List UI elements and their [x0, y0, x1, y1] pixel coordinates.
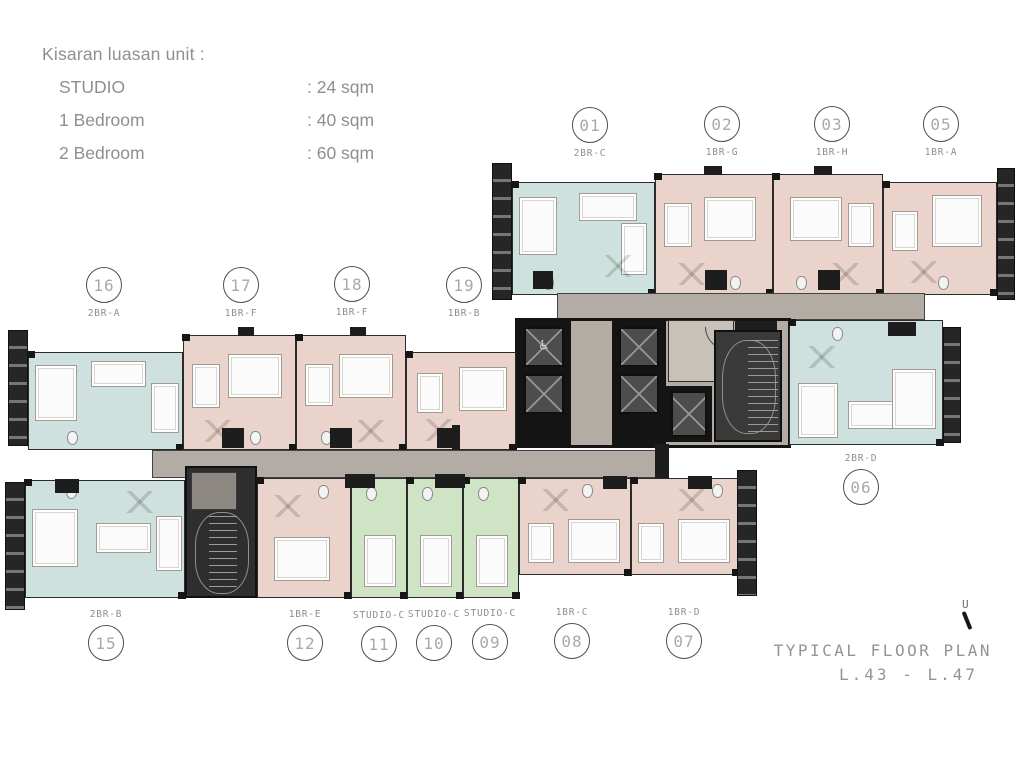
shaft-block: [705, 270, 727, 290]
shaft-block: [688, 476, 712, 489]
balcony-strip: [5, 482, 25, 610]
wall-stub: [888, 322, 916, 336]
wall-stub: [452, 425, 460, 453]
elevator-cab: [619, 374, 659, 414]
unit-type-label: STUDIO-C: [353, 610, 405, 621]
unit-marker-03: 03 1BR-H: [814, 106, 850, 142]
shaft-block: [222, 428, 244, 448]
unit-05-room: [883, 182, 997, 295]
elevator-cab: [619, 327, 659, 367]
shaft-block: [533, 271, 553, 289]
unit-type-label: 1BR-C: [556, 607, 589, 618]
north-arrow: U: [952, 598, 982, 638]
unit-number: 08: [554, 623, 590, 659]
wall-stub: [655, 444, 669, 478]
unit-number: 10: [416, 625, 452, 661]
unit-number: 03: [814, 106, 850, 142]
unit-type-label: 1BR-H: [816, 147, 849, 158]
shaft-block: [330, 428, 352, 448]
unit-09-room: [463, 478, 519, 598]
corridor-top: [557, 293, 925, 320]
unit-number: 09: [472, 624, 508, 660]
unit-number: 07: [666, 623, 702, 659]
unit-type-label: 2BR-D: [845, 453, 878, 464]
unit-type-label: 2BR-B: [90, 609, 123, 620]
unit-type-label: 2BR-A: [88, 308, 121, 319]
wall-stub: [350, 327, 366, 336]
unit-number: 12: [287, 625, 323, 661]
unit-08-room: [519, 478, 631, 575]
shaft-block: [435, 474, 465, 488]
elevator-cab: [671, 391, 707, 437]
unit-marker-11: 11 STUDIO-C: [361, 626, 397, 662]
unit-marker-17: 17 1BR-F: [223, 267, 259, 303]
balcony-strip: [997, 168, 1015, 300]
balcony-strip: [492, 163, 512, 300]
unit-marker-09: 09 STUDIO-C: [472, 624, 508, 660]
unit-type-label: 1BR-E: [289, 609, 322, 620]
stairwell-secondary: [185, 466, 257, 598]
balcony-strip: [8, 330, 28, 446]
title-block: TYPICAL FLOOR PLAN L.43 - L.47: [774, 641, 992, 684]
shaft-block: [818, 270, 840, 290]
shaft-block: [345, 474, 375, 488]
unit-marker-07: 07 1BR-D: [666, 623, 702, 659]
unit-marker-08: 08 1BR-C: [554, 623, 590, 659]
unit-type-label: 1BR-F: [336, 307, 369, 318]
unit-15-room: [25, 480, 185, 598]
plan-title: TYPICAL FLOOR PLAN: [774, 641, 992, 660]
elevator-cab: ♿: [524, 327, 564, 367]
stair-treads: [209, 516, 237, 590]
unit-type-label: STUDIO-C: [408, 609, 460, 620]
stair-treads: [748, 340, 778, 436]
unit-19-room: [406, 352, 516, 450]
unit-marker-18: 18 1BR-F: [334, 266, 370, 302]
unit-16-room: [28, 352, 183, 450]
accessible-icon: ♿: [538, 339, 550, 354]
unit-11-room: [351, 478, 407, 598]
unit-type-label: 1BR-B: [448, 308, 481, 319]
unit-type-label: 1BR-G: [706, 147, 739, 158]
unit-marker-05: 05 1BR-A: [923, 106, 959, 142]
unit-number: 11: [361, 626, 397, 662]
balcony-strip: [943, 327, 961, 443]
unit-number: 15: [88, 625, 124, 661]
unit-type-label: 2BR-C: [574, 148, 607, 159]
unit-marker-10: 10 STUDIO-C: [416, 625, 452, 661]
unit-type-label: 1BR-F: [225, 308, 258, 319]
unit-12-room: [257, 478, 351, 598]
wall-stub: [238, 327, 254, 336]
unit-number: 06: [843, 469, 879, 505]
elevator-bank-mid: [612, 320, 666, 448]
unit-10-room: [407, 478, 463, 598]
unit-marker-12: 12 1BR-E: [287, 625, 323, 661]
wall-stub: [704, 166, 722, 175]
unit-number: 19: [446, 267, 482, 303]
unit-type-label: STUDIO-C: [464, 608, 516, 619]
unit-number: 18: [334, 266, 370, 302]
unit-marker-19: 19 1BR-B: [446, 267, 482, 303]
shaft-block: [603, 476, 627, 489]
unit-marker-06: 06 2BR-D: [843, 469, 879, 505]
shaft-block: [55, 479, 79, 493]
unit-type-label: 1BR-D: [668, 607, 701, 618]
unit-marker-15: 15 2BR-B: [88, 625, 124, 661]
unit-marker-16: 16 2BR-A: [86, 267, 122, 303]
unit-type-label: 1BR-A: [925, 147, 958, 158]
plan-levels: L.43 - L.47: [774, 665, 992, 684]
unit-07-room: [631, 478, 739, 575]
unit-number: 16: [86, 267, 122, 303]
unit-number: 17: [223, 267, 259, 303]
stairwell-core: [714, 330, 782, 442]
unit-marker-01: 01 2BR-C: [572, 107, 608, 143]
balcony-strip: [737, 470, 757, 596]
unit-06-room: [789, 320, 943, 445]
unit-number: 02: [704, 106, 740, 142]
unit-number: 01: [572, 107, 608, 143]
unit-number: 05: [923, 106, 959, 142]
north-needle-icon: [962, 611, 973, 630]
elevator-service: [666, 386, 712, 442]
stair-landing: [191, 472, 237, 510]
elevator-cab: [524, 374, 564, 414]
floor-plan-sheet: Kisaran luasan unit : STUDIO : 24 sqm 1 …: [0, 0, 1024, 768]
elevator-bank-left: ♿: [517, 320, 571, 448]
wall-stub: [814, 166, 832, 175]
north-label: U: [962, 598, 969, 611]
unit-marker-02: 02 1BR-G: [704, 106, 740, 142]
